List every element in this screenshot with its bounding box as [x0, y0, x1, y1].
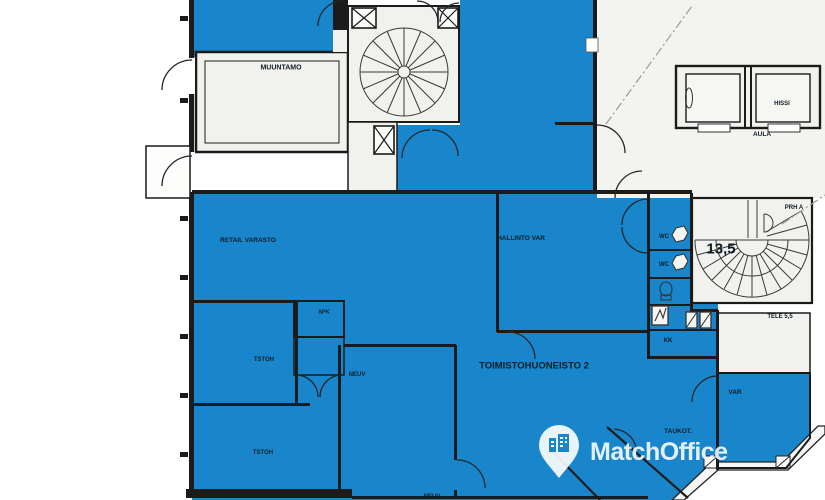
room-label-wc-1: WC: [659, 234, 669, 240]
floorplan-canvas: MUUNTAMORETAIL VARASTOHALLINTO VARSPKTST…: [0, 0, 825, 500]
room-label-tele-5-5: TELE 5,5: [767, 314, 792, 320]
room-label-wc-2: WC: [659, 262, 669, 268]
room-label-tstoh-1: TSTOH: [254, 357, 274, 363]
room-label-hallinto-var: HALLINTO VAR: [497, 236, 545, 243]
room-label-aula: AULA: [753, 132, 771, 139]
room-label-spk: SPK: [318, 310, 329, 316]
room-labels-layer: MUUNTAMORETAIL VARASTOHALLINTO VARSPKTST…: [0, 0, 825, 500]
room-label-hissi: HISSI: [774, 101, 790, 107]
room-label-prh-a: PRH A: [785, 205, 803, 211]
room-label-muuntamo: MUUNTAMO: [260, 65, 301, 72]
room-label-var: VAR: [728, 390, 741, 397]
room-label-tstoh-2: TSTOH: [253, 450, 273, 456]
room-label-kk: KK: [664, 338, 673, 344]
room-label-retail-varasto: RETAIL VARASTO: [220, 238, 276, 245]
room-label-stair-area-13-5: 13,5: [706, 242, 735, 257]
room-label-neuv-1: NEUV: [349, 372, 366, 378]
room-label-toimistohuoneisto-2: TOIMISTOHUONEISTO 2: [479, 361, 589, 371]
room-label-taukot: TAUKOT.: [664, 429, 692, 436]
room-label-neuv-2: NEUV: [424, 494, 441, 500]
